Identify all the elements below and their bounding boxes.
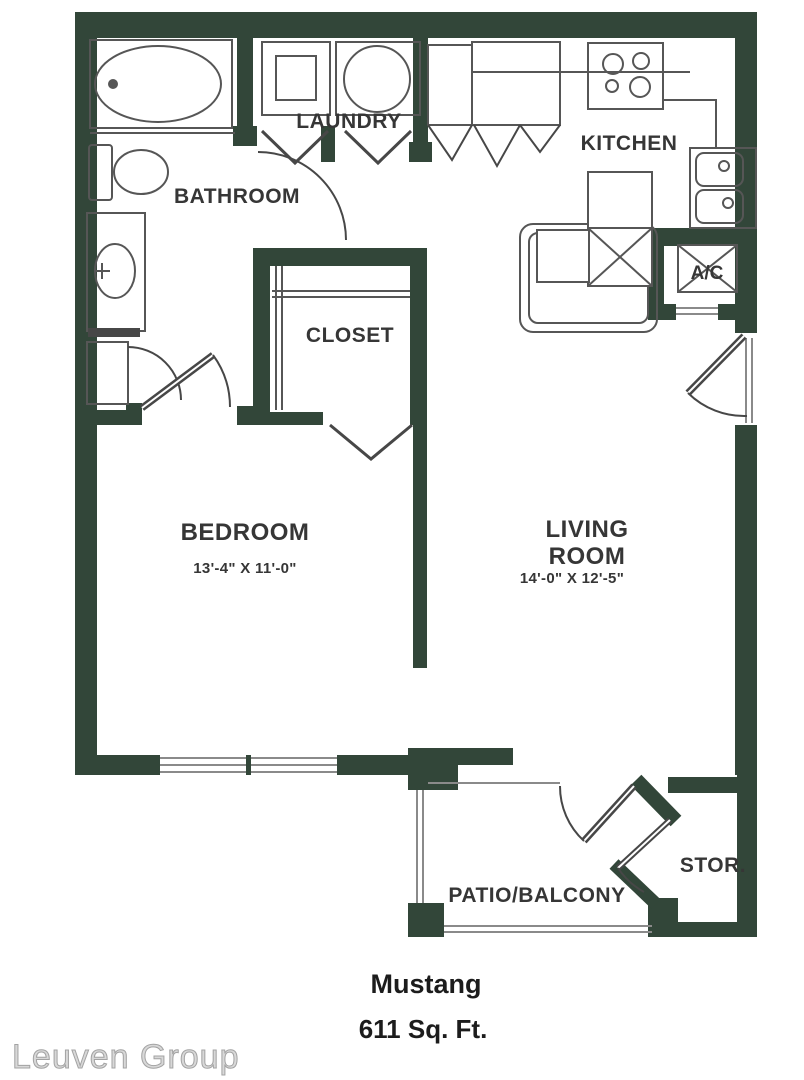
kitchen-sink-drain <box>719 161 729 171</box>
patio-door-arc <box>560 786 584 841</box>
dryer-drum <box>344 46 410 112</box>
bar-cabinet <box>588 172 652 228</box>
wall-closet-left <box>253 248 270 425</box>
label-bathroom: BATHROOM <box>174 185 300 208</box>
laundry-bifold-door-left <box>262 131 328 163</box>
wall-closet-right <box>410 248 427 425</box>
closet-bifold-door <box>330 425 412 459</box>
label-bedroom: BEDROOM <box>181 519 310 546</box>
pantry-door-mark <box>520 125 560 152</box>
wall-ac-top <box>648 228 757 246</box>
laundry-bifold-door-right <box>345 131 411 163</box>
wall-ac-bottom-right-stub <box>718 304 757 320</box>
label-patio: PATIO/BALCONY <box>448 884 625 907</box>
wall-closet-bottom-stub <box>253 412 323 425</box>
label-living-line1: LIVING <box>545 516 628 543</box>
wall-storage-top <box>668 777 738 793</box>
label-kitchen: KITCHEN <box>581 132 678 155</box>
washer <box>262 42 330 115</box>
plan-title: Mustang <box>371 969 482 999</box>
wall-bath-bottom-stub <box>126 403 142 425</box>
upper-cabinet <box>472 42 560 72</box>
wall-bath-laundry-stub <box>233 126 257 146</box>
floorplan-page: LAUNDRY BATHROOM KITCHEN CLOSET BEDROOM … <box>0 0 804 1080</box>
linen-door-arc <box>128 347 181 400</box>
stove <box>588 43 663 109</box>
label-living-dims: 14'-0" X 12'-5" <box>520 570 624 587</box>
bedroom-door-panel-core <box>142 355 213 408</box>
stove-burner <box>606 80 618 92</box>
bedroom-window-mullion <box>246 755 251 775</box>
kitchen-sink-drain <box>723 198 733 208</box>
pantry-door-mark <box>474 125 520 166</box>
vanity-edge <box>88 328 140 337</box>
wall-patio-post-bottom <box>408 903 444 937</box>
entry-door-panel-core <box>688 336 744 393</box>
washer-lid <box>276 56 316 100</box>
floorplan-drawing: LAUNDRY BATHROOM KITCHEN CLOSET BEDROOM … <box>0 0 804 1080</box>
watermark: Leuven Group <box>12 1038 240 1076</box>
label-bedroom-dims: 13'-4" X 11'-0" <box>193 560 296 577</box>
refrigerator <box>428 45 472 125</box>
label-laundry: LAUNDRY <box>296 110 401 133</box>
pantry-cabinet <box>472 72 560 125</box>
refrigerator-door-mark <box>428 125 472 160</box>
label-living-line2: ROOM <box>549 543 626 570</box>
label-closet: CLOSET <box>306 324 394 347</box>
label-ac: A/C <box>691 263 724 284</box>
bathtub-drain <box>109 80 117 88</box>
dryer <box>336 42 420 115</box>
wall-bath-laundry <box>237 12 253 133</box>
storage-door-panel-core <box>618 820 670 868</box>
stove-burner <box>633 53 649 69</box>
stove-burner <box>630 77 650 97</box>
wall-laundry-kitchen-stub <box>409 142 432 162</box>
toilet-bowl <box>114 150 168 194</box>
patio-door-panel-core <box>584 786 634 841</box>
plan-area: 611 Sq. Ft. <box>359 1014 488 1044</box>
wall-closet-top <box>253 248 427 266</box>
bedroom-door-arc <box>213 355 230 407</box>
wall-right-lower <box>735 425 757 775</box>
entry-door-arc <box>688 393 747 416</box>
windows-and-rails <box>160 308 752 932</box>
wall-bedroom-living <box>413 425 427 668</box>
bar-seat <box>537 230 589 282</box>
plan-title-block: Mustang 611 Sq. Ft. <box>359 969 488 1044</box>
label-storage: STOR. <box>680 854 746 877</box>
wall-ac-bottom-left-stub <box>648 304 676 320</box>
wall-right-upper <box>735 12 757 333</box>
